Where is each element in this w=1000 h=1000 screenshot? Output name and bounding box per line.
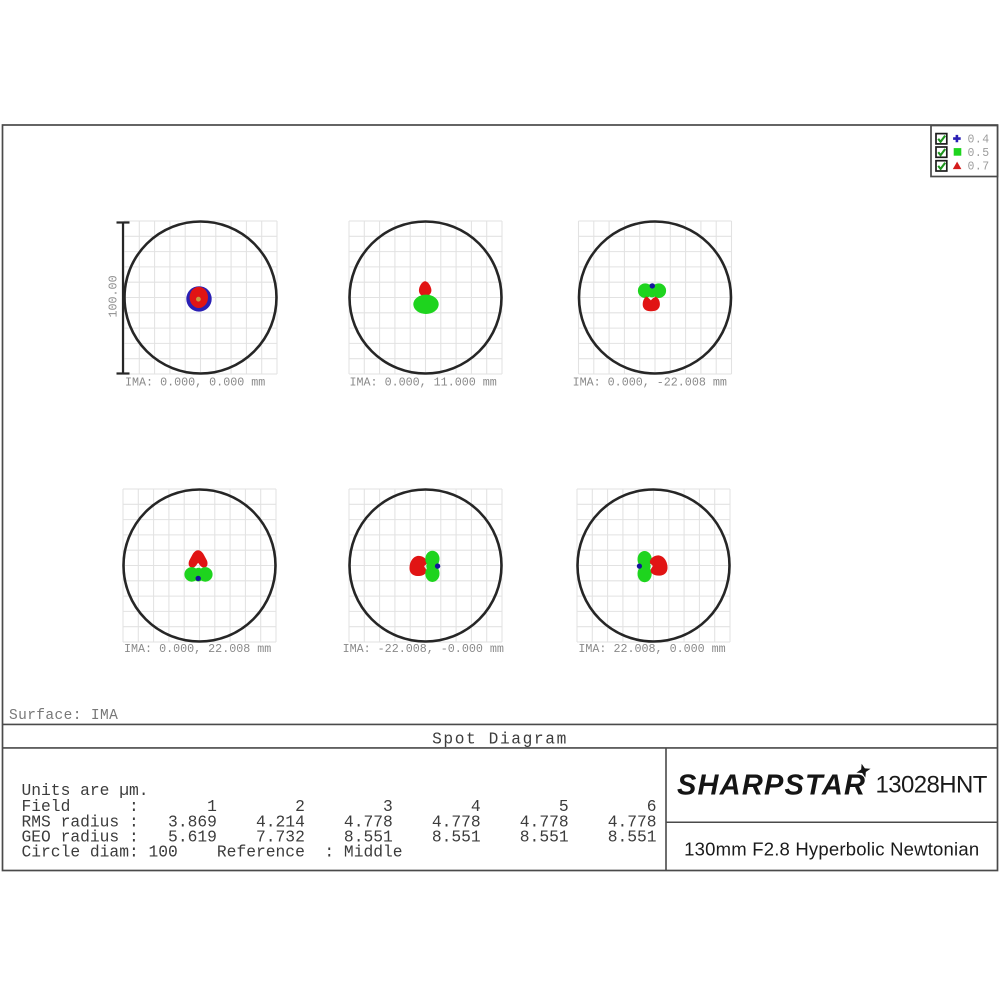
svg-text:13028HNT: 13028HNT (876, 772, 988, 799)
svg-text:100.00: 100.00 (107, 275, 121, 317)
svg-text:Surface: IMA: Surface: IMA (9, 708, 118, 724)
svg-text:IMA: 0.000, 11.000 mm: IMA: 0.000, 11.000 mm (350, 375, 497, 389)
svg-text:Circle diam: 100 Reference: Circle diam: 100 Reference : Middle (22, 842, 403, 861)
svg-text:Spot Diagram: Spot Diagram (432, 730, 568, 748)
svg-text:IMA: 0.000, -22.008 mm: IMA: 0.000, -22.008 mm (573, 375, 727, 389)
svg-text:IMA: 0.000, 0.000 mm: IMA: 0.000, 0.000 mm (125, 375, 265, 389)
svg-text:0.4: 0.4 (968, 133, 990, 146)
svg-text:IMA: 22.008, 0.000 mm: IMA: 22.008, 0.000 mm (578, 642, 725, 656)
svg-text:0.5: 0.5 (968, 147, 990, 160)
svg-text:IMA: -22.008, -0.000 mm: IMA: -22.008, -0.000 mm (343, 642, 504, 656)
svg-text:130mm F2.8 Hyperbolic Newtonia: 130mm F2.8 Hyperbolic Newtonian (684, 839, 979, 860)
svg-text:SHARPSTAR: SHARPSTAR (677, 770, 866, 802)
svg-text:0.7: 0.7 (968, 161, 990, 174)
svg-text:IMA: 0.000, 22.008 mm: IMA: 0.000, 22.008 mm (124, 642, 271, 656)
